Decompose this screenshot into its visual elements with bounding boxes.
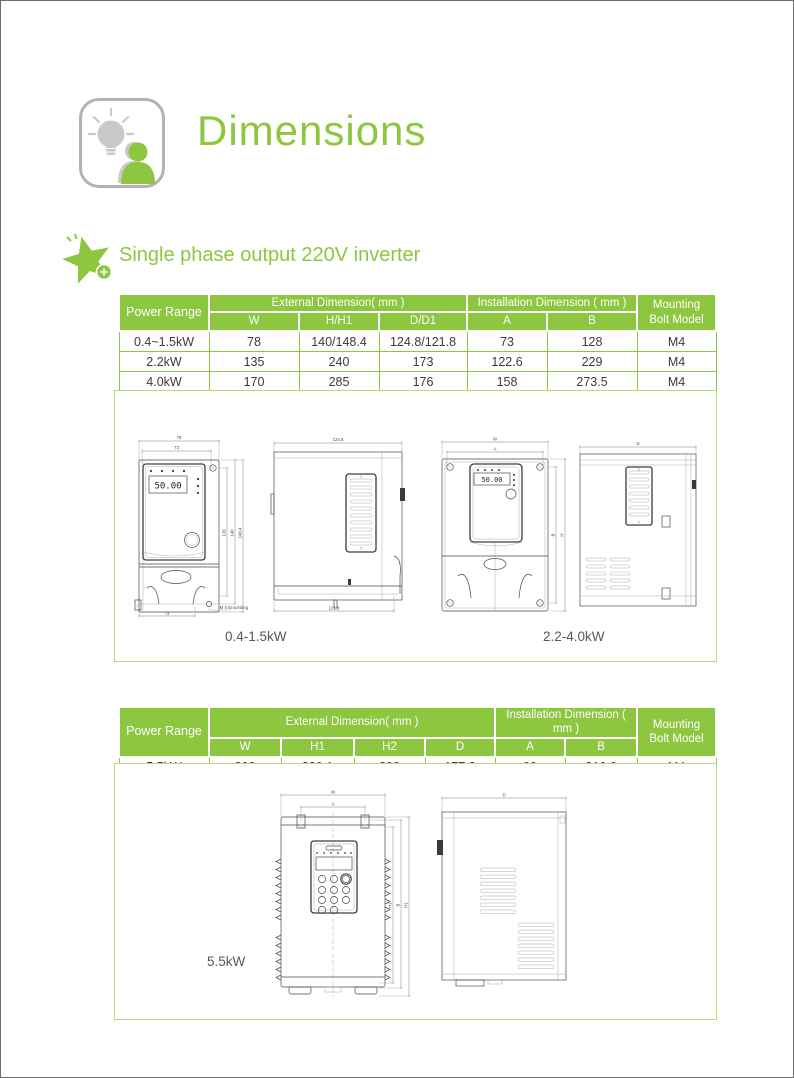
col-header-h: H/H1 bbox=[299, 312, 379, 331]
dim-label: H1 bbox=[404, 902, 409, 908]
drawing-side-mid-inverter: D bbox=[574, 440, 702, 614]
dim-label: 78 bbox=[177, 435, 182, 440]
drawing-front-small-inverter: 78 73 50.00 M 4 Grounding 128 bbox=[129, 434, 249, 619]
dim-label: W bbox=[331, 789, 336, 794]
table-cell: 124.8/121.8 bbox=[379, 331, 467, 352]
col-header-b: B bbox=[565, 738, 637, 757]
drawing-caption: 2.2-4.0kW bbox=[543, 629, 605, 644]
table-cell: 122.6 bbox=[467, 352, 547, 372]
keypad-panel bbox=[311, 841, 357, 913]
page: Dimensions Single phase output 220V inve… bbox=[0, 0, 794, 1078]
table-cell: 78 bbox=[209, 331, 299, 352]
vent-group-lower bbox=[518, 923, 554, 969]
fan-grille bbox=[626, 467, 652, 525]
drawing-front-large-inverter: W A bbox=[267, 787, 417, 1000]
dim-label: 148.4 bbox=[238, 527, 243, 538]
group-header-external: External Dimension( mm ) bbox=[209, 707, 495, 738]
dim-label: 124.8 bbox=[333, 437, 344, 442]
grounding-note: M 4 Grounding bbox=[220, 605, 249, 610]
display bbox=[316, 857, 352, 870]
col-header-w: W bbox=[209, 738, 281, 757]
group-header-installation: Installation Dimension ( mm ) bbox=[467, 294, 637, 312]
table-cell: 170 bbox=[209, 372, 299, 392]
table-cell: 2.2kW bbox=[119, 352, 209, 372]
table-cell: 285 bbox=[299, 372, 379, 392]
group-header-external: External Dimension( mm ) bbox=[209, 294, 467, 312]
lightbulb-base bbox=[106, 145, 117, 155]
table-cell: 73 bbox=[467, 331, 547, 352]
vent-group-upper bbox=[480, 868, 516, 914]
table-row: 4.0kW170285176158273.5M4 bbox=[119, 372, 716, 392]
drawing-side-small-inverter: 124.8 121.8 bbox=[264, 436, 410, 616]
table-cell: 4.0kW bbox=[119, 372, 209, 392]
col-header-h1: H1 bbox=[281, 738, 354, 757]
dim-label: A bbox=[332, 801, 335, 806]
fan-grille bbox=[346, 474, 376, 552]
dim-label: W bbox=[493, 436, 498, 441]
spec-table-small-inverters: Power Range External Dimension( mm ) Ins… bbox=[118, 293, 717, 392]
table-cell: M4 bbox=[637, 372, 716, 392]
section-heading: Single phase output 220V inverter bbox=[119, 244, 420, 267]
header-icon-box bbox=[79, 98, 165, 188]
drawing-caption: 0.4-1.5kW bbox=[225, 629, 287, 644]
col-header-power-range: Power Range bbox=[119, 707, 209, 757]
table-row: 0.4~1.5kW78140/148.4124.8/121.873128M4 bbox=[119, 331, 716, 352]
dim-label: D bbox=[502, 792, 505, 797]
col-header-a: A bbox=[495, 738, 565, 757]
dim-label: B bbox=[396, 903, 401, 906]
col-header-mounting: MountingBolt Model bbox=[637, 707, 716, 757]
grille-slats bbox=[629, 469, 649, 524]
oval-vent bbox=[161, 571, 191, 584]
table-cell: 0.4~1.5kW bbox=[119, 331, 209, 352]
lightbulb-icon bbox=[98, 121, 125, 148]
col-header-mounting: MountingBolt Model bbox=[637, 294, 716, 331]
dim-label: H bbox=[560, 533, 565, 536]
dim-label: A bbox=[494, 446, 497, 451]
table-cell: 240 bbox=[299, 352, 379, 372]
table-cell: 158 bbox=[467, 372, 547, 392]
col-header-d: D bbox=[425, 738, 495, 757]
table-cell: 140/148.4 bbox=[299, 331, 379, 352]
drawing-side-large-inverter: D bbox=[434, 790, 574, 995]
dim-label: D bbox=[636, 441, 639, 446]
col-header-a: A bbox=[467, 312, 547, 331]
star-plus-icon bbox=[61, 233, 115, 283]
dim-label: 73 bbox=[174, 445, 179, 450]
dim-label: 73 bbox=[165, 611, 170, 616]
page-title: Dimensions bbox=[197, 107, 426, 155]
display-readout: 50.00 bbox=[481, 476, 502, 484]
table-cell: M4 bbox=[637, 352, 716, 372]
led-dots bbox=[316, 852, 352, 854]
drawing-caption: 5.5kW bbox=[207, 954, 245, 969]
grille-slats bbox=[350, 476, 372, 550]
dim-label: 128 bbox=[222, 529, 227, 537]
col-header-d: D/D1 bbox=[379, 312, 467, 331]
col-header-b: B bbox=[547, 312, 637, 331]
table-cell: 128 bbox=[547, 331, 637, 352]
dim-label: 121.8 bbox=[329, 605, 340, 610]
bottom-vents bbox=[586, 558, 630, 589]
table-row: 2.2kW135240173122.6229M4 bbox=[119, 352, 716, 372]
table-cell: M4 bbox=[637, 331, 716, 352]
drawings-box-large-inverter: W A bbox=[114, 763, 717, 1020]
table-cell: 229 bbox=[547, 352, 637, 372]
drawings-box-small-inverters: 78 73 50.00 M 4 Grounding 128 bbox=[114, 390, 717, 662]
dim-label: 140 bbox=[230, 529, 235, 537]
col-header-power-range: Power Range bbox=[119, 294, 209, 331]
col-header-w: W bbox=[209, 312, 299, 331]
table-cell: 273.5 bbox=[547, 372, 637, 392]
drawing-front-mid-inverter: W A 50.00 B H bbox=[434, 436, 572, 619]
display-readout: 50.00 bbox=[154, 482, 181, 492]
table-cell: 176 bbox=[379, 372, 467, 392]
lightbulb-person-icon bbox=[82, 101, 162, 185]
col-header-h2: H2 bbox=[354, 738, 425, 757]
table-cell: 135 bbox=[209, 352, 299, 372]
keypad-panel bbox=[143, 464, 205, 560]
dim-label: H2 bbox=[388, 902, 393, 908]
knob bbox=[506, 489, 516, 499]
knob bbox=[185, 533, 200, 548]
keypad-buttons bbox=[318, 874, 351, 914]
table-cell: 173 bbox=[379, 352, 467, 372]
group-header-installation: Installation Dimension ( mm ) bbox=[495, 707, 637, 738]
dim-label: B bbox=[551, 533, 556, 536]
